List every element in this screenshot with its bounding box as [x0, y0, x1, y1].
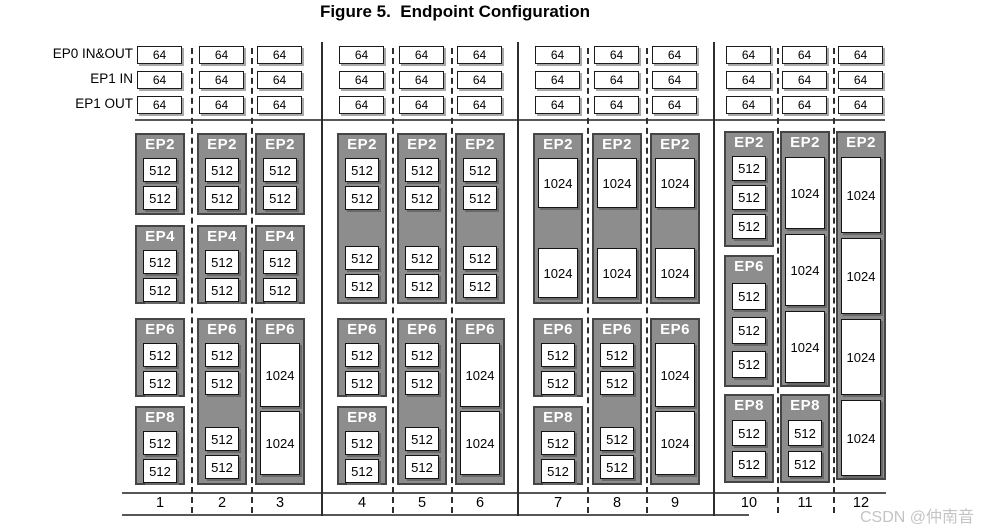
ep-block-label: EP2	[145, 136, 175, 154]
ep-block-label: EP6	[543, 321, 573, 339]
buffer-box: 512	[463, 246, 497, 270]
buffer-box: 512	[143, 278, 177, 302]
buffer-box: 512	[405, 343, 439, 367]
header-buffer-box: 64	[782, 96, 827, 114]
ep-block: EP2102410241024	[780, 131, 830, 387]
header-buffer-box: 64	[339, 71, 384, 89]
buffer-box: 512	[732, 451, 766, 477]
header-buffer-box: 64	[838, 96, 883, 114]
buffer-box: 1024	[785, 157, 825, 229]
header-buffer-box: 64	[457, 71, 502, 89]
buffer-box: 1024	[655, 411, 695, 475]
header-buffer-box: 64	[399, 96, 444, 114]
ep-block-label: EP8	[145, 409, 175, 427]
buffer-box: 512	[405, 186, 439, 210]
column-separator-dashed-line	[587, 48, 589, 513]
watermark: CSDN @仲南音	[860, 503, 974, 527]
header-buffer-box: 64	[257, 96, 302, 114]
header-buffer-box: 64	[535, 96, 580, 114]
buffer-box: 512	[263, 250, 297, 274]
header-buffer-box: 64	[535, 46, 580, 64]
column-number: 7	[533, 495, 583, 511]
buffer-box: 512	[405, 371, 439, 395]
buffer-box: 512	[205, 250, 239, 274]
header-label-ep1-in: EP1 IN	[0, 69, 133, 89]
endpoint-configuration-figure: Figure 5. Endpoint Configuration EP0 IN&…	[0, 0, 982, 531]
buffer-box: 512	[263, 186, 297, 210]
buffer-box: 512	[345, 186, 379, 210]
ep-block-label: EP2	[543, 136, 573, 154]
ep-block: EP4512512	[255, 225, 305, 304]
header-buffer-box: 64	[199, 71, 244, 89]
buffer-box: 512	[405, 427, 439, 451]
ep-block: EP8512512	[780, 394, 830, 483]
buffer-box: 512	[263, 158, 297, 182]
buffer-box: 512	[732, 317, 766, 344]
ep-block: EP2512512512512	[397, 133, 447, 304]
ep-block: EP6512512512	[724, 255, 774, 387]
header-buffer-box: 64	[257, 46, 302, 64]
ep-block-label: EP2	[790, 134, 820, 152]
buffer-box: 512	[143, 250, 177, 274]
ep-block-label: EP2	[407, 136, 437, 154]
header-buffer-box: 64	[399, 71, 444, 89]
header-buffer-box: 64	[838, 71, 883, 89]
ep-block-label: EP6	[265, 321, 295, 339]
buffer-box: 512	[143, 186, 177, 210]
ep-block-label: EP4	[207, 228, 237, 246]
column-number: 6	[455, 495, 505, 511]
buffer-box: 512	[143, 371, 177, 395]
ep-block: EP2512512512512	[337, 133, 387, 304]
ep-block: EP2512512512	[724, 131, 774, 247]
buffer-box: 512	[205, 158, 239, 182]
header-buffer-box: 64	[535, 71, 580, 89]
ep-block-label: EP6	[734, 258, 764, 276]
buffer-box: 512	[405, 246, 439, 270]
ep-block: EP6512512512512	[592, 318, 642, 485]
buffer-box: 1024	[785, 234, 825, 306]
ep-block-label: EP8	[347, 409, 377, 427]
ep-block: EP2512512512512	[455, 133, 505, 304]
buffer-box: 512	[143, 343, 177, 367]
header-buffer-box: 64	[726, 96, 771, 114]
group-separator-line	[713, 42, 715, 516]
column-separator-dashed-line	[833, 48, 835, 513]
column-separator-dashed-line	[251, 48, 253, 513]
ep-block-label: EP2	[465, 136, 495, 154]
ep-block: EP210241024	[650, 133, 700, 304]
buffer-box: 512	[541, 431, 575, 455]
column-separator-dashed-line	[646, 48, 648, 513]
header-buffer-box: 64	[782, 71, 827, 89]
ep-block: EP2512512	[197, 133, 247, 215]
header-buffer-box: 64	[726, 46, 771, 64]
ep-block-label: EP8	[790, 397, 820, 415]
ep-block-label: EP6	[145, 321, 175, 339]
horizontal-divider-line	[135, 119, 885, 121]
buffer-box: 1024	[841, 238, 881, 314]
buffer-box: 1024	[460, 343, 500, 407]
buffer-box: 512	[732, 351, 766, 378]
ep-block-label: EP8	[543, 409, 573, 427]
ep-block: EP8512512	[337, 406, 387, 485]
ep-block: EP8512512	[135, 406, 185, 485]
column-separator-dashed-line	[451, 48, 453, 513]
header-buffer-box: 64	[652, 96, 697, 114]
buffer-box: 512	[600, 371, 634, 395]
buffer-box: 512	[205, 455, 239, 479]
ep-block: EP4512512	[197, 225, 247, 304]
buffer-box: 1024	[538, 158, 578, 208]
ep-block-label: EP2	[347, 136, 377, 154]
group-separator-line	[517, 42, 519, 516]
buffer-box: 1024	[841, 157, 881, 233]
buffer-box: 1024	[841, 319, 881, 395]
buffer-box: 512	[732, 185, 766, 210]
header-buffer-box: 64	[594, 96, 639, 114]
buffer-box: 1024	[655, 248, 695, 298]
header-buffer-box: 64	[137, 96, 182, 114]
column-separator-dashed-line	[191, 48, 193, 513]
buffer-box: 512	[143, 158, 177, 182]
buffer-box: 512	[732, 420, 766, 446]
column-number: 9	[650, 495, 700, 511]
buffer-box: 1024	[597, 248, 637, 298]
buffer-box: 512	[732, 283, 766, 310]
ep-block: EP6512512	[533, 318, 583, 397]
header-buffer-box: 64	[838, 46, 883, 64]
column-separator-dashed-line	[392, 48, 394, 513]
buffer-box: 1024	[785, 311, 825, 383]
buffer-box: 1024	[841, 400, 881, 476]
header-buffer-box: 64	[137, 71, 182, 89]
ep-block: EP610241024	[255, 318, 305, 485]
horizontal-divider-line	[122, 492, 886, 494]
column-number: 5	[397, 495, 447, 511]
header-buffer-box: 64	[594, 71, 639, 89]
buffer-box: 512	[732, 156, 766, 181]
buffer-box: 512	[205, 343, 239, 367]
column-number: 3	[255, 495, 305, 511]
buffer-box: 512	[143, 459, 177, 483]
buffer-box: 512	[541, 459, 575, 483]
header-buffer-box: 64	[652, 46, 697, 64]
buffer-box: 1024	[655, 343, 695, 407]
buffer-box: 1024	[260, 343, 300, 407]
header-label-ep0-inout: EP0 IN&OUT	[0, 44, 133, 64]
buffer-box: 512	[205, 371, 239, 395]
buffer-box: 512	[788, 420, 822, 446]
column-number: 8	[592, 495, 642, 511]
buffer-box: 1024	[597, 158, 637, 208]
buffer-box: 512	[463, 274, 497, 298]
ep-block: EP4512512	[135, 225, 185, 304]
buffer-box: 512	[263, 278, 297, 302]
buffer-box: 512	[600, 427, 634, 451]
ep-block: EP6512512512512	[197, 318, 247, 485]
header-buffer-box: 64	[594, 46, 639, 64]
header-buffer-box: 64	[339, 46, 384, 64]
ep-block: EP8512512	[724, 394, 774, 483]
ep-block: EP6512512	[135, 318, 185, 397]
header-buffer-box: 64	[199, 46, 244, 64]
buffer-box: 512	[345, 343, 379, 367]
buffer-box: 512	[463, 158, 497, 182]
ep-block: EP8512512	[533, 406, 583, 485]
buffer-box: 1024	[260, 411, 300, 475]
buffer-box: 512	[143, 431, 177, 455]
ep-block-label: EP8	[734, 397, 764, 415]
ep-block: EP2512512	[135, 133, 185, 215]
ep-block-label: EP2	[265, 136, 295, 154]
buffer-box: 512	[405, 158, 439, 182]
header-buffer-box: 64	[652, 71, 697, 89]
ep-block-label: EP4	[265, 228, 295, 246]
buffer-box: 512	[788, 451, 822, 477]
buffer-box: 512	[600, 455, 634, 479]
buffer-box: 512	[405, 455, 439, 479]
figure-title: Figure 5. Endpoint Configuration	[0, 2, 910, 22]
ep-block: EP610241024	[650, 318, 700, 485]
buffer-box: 512	[205, 186, 239, 210]
group-separator-line	[321, 42, 323, 516]
ep-block-label: EP2	[660, 136, 690, 154]
ep-block-label: EP2	[734, 134, 764, 152]
ep-block-label: EP6	[660, 321, 690, 339]
header-buffer-box: 64	[137, 46, 182, 64]
buffer-box: 512	[405, 274, 439, 298]
header-buffer-box: 64	[457, 46, 502, 64]
buffer-box: 512	[345, 274, 379, 298]
header-buffer-box: 64	[199, 96, 244, 114]
column-number: 1	[135, 495, 185, 511]
buffer-box: 1024	[460, 411, 500, 475]
header-buffer-box: 64	[782, 46, 827, 64]
header-buffer-box: 64	[257, 71, 302, 89]
buffer-box: 512	[732, 214, 766, 239]
buffer-box: 512	[345, 371, 379, 395]
ep-block: EP2512512	[255, 133, 305, 215]
buffer-box: 512	[345, 246, 379, 270]
header-buffer-box: 64	[399, 46, 444, 64]
buffer-box: 512	[345, 459, 379, 483]
ep-block: EP210241024	[592, 133, 642, 304]
ep-block: EP6512512512512	[397, 318, 447, 485]
header-buffer-box: 64	[457, 96, 502, 114]
ep-block-label: EP2	[846, 134, 876, 152]
buffer-box: 512	[541, 371, 575, 395]
buffer-box: 512	[205, 427, 239, 451]
buffer-box: 512	[463, 186, 497, 210]
horizontal-divider-line	[122, 514, 749, 516]
ep-block: EP610241024	[455, 318, 505, 485]
ep-block-label: EP2	[207, 136, 237, 154]
ep-block-label: EP6	[207, 321, 237, 339]
ep-block-label: EP6	[465, 321, 495, 339]
buffer-box: 512	[541, 343, 575, 367]
ep-block: EP6512512	[337, 318, 387, 397]
ep-block-label: EP6	[347, 321, 377, 339]
column-number: 4	[337, 495, 387, 511]
column-separator-dashed-line	[777, 48, 779, 513]
header-buffer-box: 64	[726, 71, 771, 89]
buffer-box: 512	[205, 278, 239, 302]
header-label-ep1-out: EP1 OUT	[0, 94, 133, 114]
column-number: 11	[780, 495, 830, 511]
buffer-box: 512	[345, 431, 379, 455]
ep-block: EP210241024	[533, 133, 583, 304]
buffer-box: 512	[345, 158, 379, 182]
buffer-box: 1024	[655, 158, 695, 208]
ep-block-label: EP6	[407, 321, 437, 339]
column-number: 2	[197, 495, 247, 511]
column-number: 10	[724, 495, 774, 511]
ep-block-label: EP6	[602, 321, 632, 339]
ep-block: EP21024102410241024	[836, 131, 886, 480]
buffer-box: 512	[600, 343, 634, 367]
buffer-box: 1024	[538, 248, 578, 298]
ep-block-label: EP4	[145, 228, 175, 246]
ep-block-label: EP2	[602, 136, 632, 154]
header-buffer-box: 64	[339, 96, 384, 114]
